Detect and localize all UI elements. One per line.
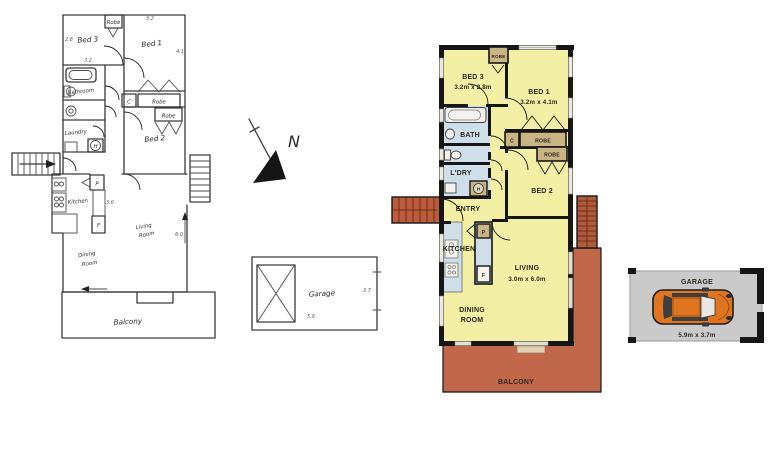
sketch-kitchen-label: Kitchen <box>68 198 89 206</box>
entry-steps <box>392 197 441 223</box>
sketch-dining-label-2: Room <box>82 260 98 268</box>
sketch-bed1-label: Bed 1 <box>141 38 163 49</box>
sketch-dim-bed3-depth: 2.8 <box>65 37 73 43</box>
sketch-dim-bed1-width: 3.2 <box>146 16 154 22</box>
sketch-garage-label: Garage <box>308 288 335 298</box>
sketch-right-stairs <box>190 155 210 202</box>
sketch-dim-garage-depth: 3.7 <box>363 288 371 294</box>
closet-c-label: C <box>510 139 514 145</box>
sketch-laundry-tub-icon <box>65 142 77 152</box>
sketch-hot-water-label: H <box>93 144 97 150</box>
hand-drawn-floor-plan: Robe C Robe Robe <box>0 0 240 400</box>
laundry-label: L'DRY <box>450 170 472 177</box>
sketch-toilet-icon <box>66 106 76 116</box>
sketch-bathtub-icon <box>66 68 96 82</box>
sketch-balcony-label: Balcony <box>113 316 143 327</box>
sketch-living-label-2: Room <box>139 231 155 240</box>
sketch-bed3-label: Bed 3 <box>77 34 99 44</box>
garage-dims: 5.9m x 3.7m <box>678 332 716 339</box>
sketch-fridge-label: F <box>97 223 101 229</box>
sketch-left-stairs <box>12 153 76 175</box>
porch-step <box>517 346 545 353</box>
sketch-robe-top: Robe <box>105 15 122 37</box>
hand-drawn-garage-sketch: Garage 3.7 5.9 <box>245 250 390 340</box>
hot-water-unit: H <box>470 181 487 196</box>
bathtub-icon <box>445 108 486 123</box>
sketch-bathroom-label: Bathroom <box>67 88 94 97</box>
kitchen-label: KITCHEN <box>443 246 476 253</box>
deck-staircase <box>577 196 597 248</box>
sketch-kitchen-appliances <box>52 178 77 233</box>
living-dims: 3.0m x 6.0m <box>508 276 546 283</box>
bed3-label: BED 3 <box>462 74 484 81</box>
robe-bed2-label: ROBE <box>544 153 560 159</box>
robe-top-label: ROBE <box>491 54 505 59</box>
north-arrow-icon: N <box>240 100 305 195</box>
sketch-laundry-label: Laundry <box>65 129 88 137</box>
pantry-label: P <box>482 230 486 236</box>
toilet-icon <box>445 150 462 160</box>
sketch-robe-bed1: Robe <box>138 80 180 107</box>
sketch-robe-bed1-label: Robe <box>152 100 166 106</box>
sketch-dining-label-1: Dining <box>78 251 97 259</box>
sketch-fridge: F <box>92 190 105 233</box>
entry-label: ENTRY <box>456 206 481 213</box>
sketch-pantry-label: P <box>95 182 99 188</box>
basin-icon <box>446 129 455 139</box>
hot-water-label: H <box>477 187 481 192</box>
robe-bed1-label: ROBE <box>535 139 551 145</box>
dining-label-1: DINING <box>459 307 485 314</box>
sketch-closet-c-label: C <box>127 100 131 106</box>
bed2-label: BED 2 <box>531 188 553 195</box>
sketch-robe-bed2: Robe <box>155 108 182 134</box>
sketch-dim-living-depth: 6.0 <box>175 232 183 238</box>
stove-icon <box>445 263 458 277</box>
bed1-label: BED 1 <box>528 89 550 96</box>
sketch-pantry: P <box>82 175 104 190</box>
bed1-dims: 3.2m x 4.1m <box>520 99 558 106</box>
closet-c-box: C <box>505 132 519 147</box>
sketch-robe-top-label: Robe <box>107 20 121 26</box>
sketch-living-label-1: Living <box>135 223 152 232</box>
dining-label-2: ROOM <box>461 317 484 324</box>
fridge-label: F <box>482 273 485 279</box>
balcony-label: BALCONY <box>498 379 534 386</box>
fridge-box: F <box>477 266 490 282</box>
sketch-bed2-label: Bed 2 <box>144 133 166 144</box>
sketch-dim-bed1-depth: 4.1 <box>176 49 184 55</box>
sketch-dim-kitchen-width: 3.0 <box>106 200 114 206</box>
floorplan-comparison-image: Robe C Robe Robe <box>0 0 770 450</box>
car-icon <box>653 288 733 327</box>
colored-floor-plan: ROBE C ROBE ROBE <box>385 35 610 400</box>
garage-panel: GARAGE 5.9m x 3.7m <box>622 258 770 350</box>
sketch-door-arcs <box>93 46 144 190</box>
sketch-dim-bed3-width: 3.2 <box>84 58 92 64</box>
sketch-robe-bed2-label: Robe <box>162 114 176 120</box>
sketch-hot-water-icon: H <box>88 139 103 152</box>
bath-label: BATH <box>460 132 480 139</box>
living-label: LIVING <box>515 265 540 272</box>
laundry-tub-icon <box>445 183 456 193</box>
sketch-dim-garage-width: 5.9 <box>307 314 315 320</box>
north-label: N <box>288 132 300 151</box>
bed3-dims: 3.2m x 2.8m <box>454 84 492 91</box>
garage-title: GARAGE <box>681 279 713 286</box>
